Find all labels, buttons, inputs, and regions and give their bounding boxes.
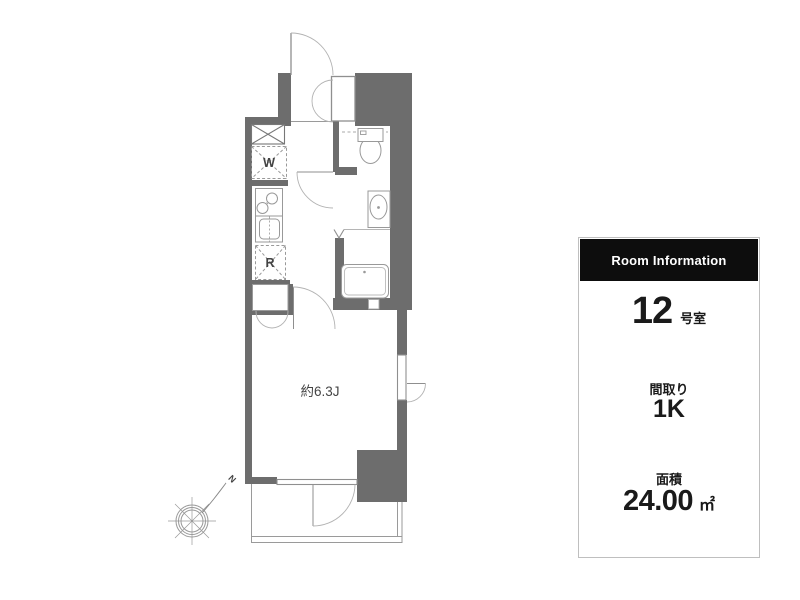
fridge-label: R [265, 256, 274, 270]
area-unit: ㎡ [699, 491, 715, 515]
closet [253, 285, 289, 329]
entrance-door [291, 33, 333, 122]
folding-door [334, 230, 390, 239]
compass: N [168, 473, 238, 545]
washer-label: W [263, 156, 275, 170]
shoe-cabinet [312, 77, 355, 123]
main-room-door [293, 287, 335, 329]
balcony-window [277, 480, 357, 527]
side-window [398, 355, 426, 402]
north-label: N [226, 473, 238, 485]
layout-value: 1K [579, 395, 759, 424]
storage-box [252, 125, 285, 145]
fridge-space: R [256, 246, 286, 280]
toilet-handle [361, 131, 367, 135]
toilet [342, 129, 388, 164]
area-value-row: 24.00 ㎡ [579, 485, 759, 518]
hall-door [297, 172, 333, 208]
room-size-label: 約6.3J [300, 384, 339, 399]
room-number: 12 [632, 290, 672, 333]
bath-window [369, 300, 380, 310]
room-info-header: Room Information [580, 239, 758, 281]
kitchen-counter [256, 189, 283, 243]
north-arrow [202, 483, 226, 513]
washer-space: W [252, 147, 287, 179]
room-number-row: 12 号室 [579, 290, 759, 333]
page: W R [0, 0, 800, 600]
room-info-panel: Room Information 12 号室 間取り 1K 面積 24.00 ㎡ [578, 237, 760, 558]
room-info-title: Room Information [611, 253, 726, 268]
room-number-suffix: 号室 [680, 308, 706, 327]
area-value: 24.00 [623, 485, 693, 518]
washbasin [368, 191, 390, 228]
